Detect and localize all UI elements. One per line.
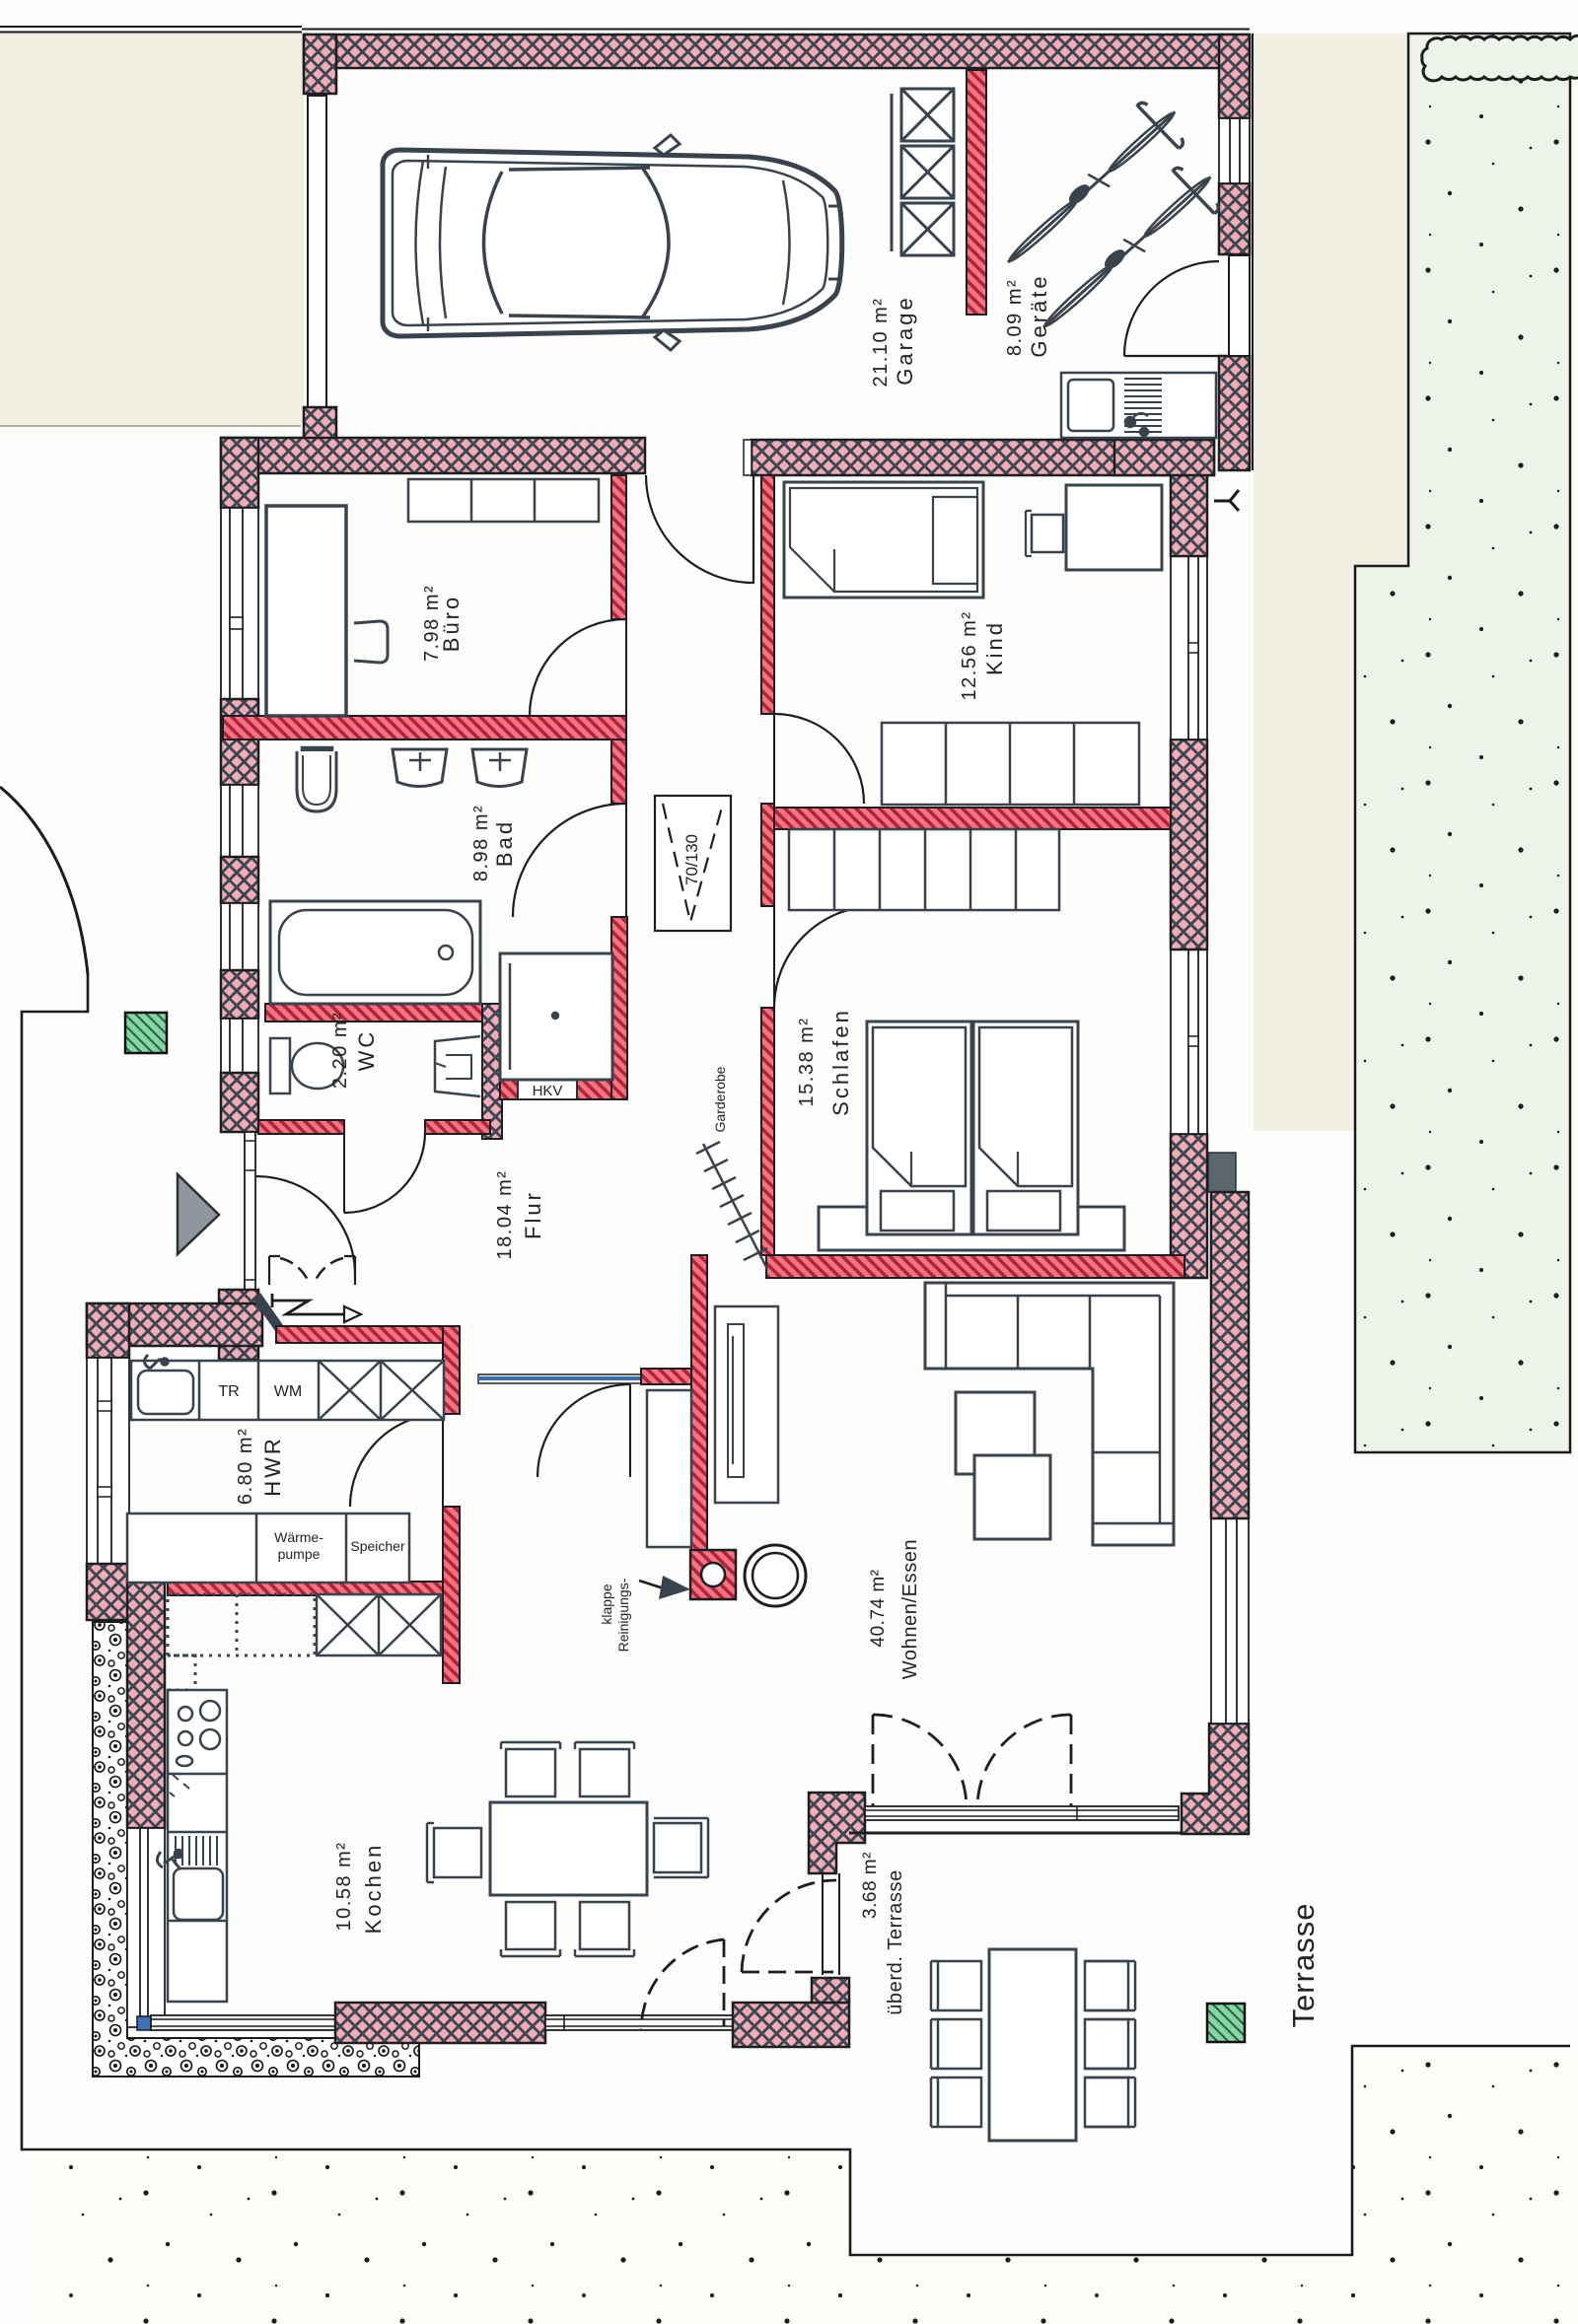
svg-text:Terrasse: Terrasse bbox=[1286, 1903, 1321, 2028]
svg-text:TR: TR bbox=[218, 1383, 239, 1400]
svg-text:3.68 m²: 3.68 m² bbox=[860, 1852, 881, 1919]
svg-text:Bad: Bad bbox=[492, 819, 517, 867]
svg-text:15.38 m²: 15.38 m² bbox=[796, 1018, 818, 1107]
svg-text:Garage: Garage bbox=[893, 295, 917, 385]
svg-text:Flur: Flur bbox=[521, 1190, 545, 1239]
svg-text:pumpe: pumpe bbox=[278, 1546, 321, 1562]
svg-text:klappe: klappe bbox=[599, 1584, 614, 1624]
svg-text:18.04 m²: 18.04 m² bbox=[494, 1170, 516, 1260]
svg-text:WC: WC bbox=[354, 1029, 379, 1072]
svg-text:Kind: Kind bbox=[982, 620, 1007, 675]
svg-text:40.74 m²: 40.74 m² bbox=[868, 1570, 889, 1648]
svg-text:6.80 m²: 6.80 m² bbox=[235, 1428, 256, 1505]
svg-text:Schlafen: Schlafen bbox=[828, 1008, 853, 1116]
svg-text:WM: WM bbox=[274, 1383, 302, 1400]
svg-text:Kochen: Kochen bbox=[361, 1843, 386, 1935]
svg-text:HKV: HKV bbox=[533, 1083, 563, 1099]
svg-text:2.20 m²: 2.20 m² bbox=[329, 1012, 351, 1089]
svg-text:überd. Terrasse: überd. Terrasse bbox=[885, 1869, 906, 2015]
svg-text:Garderobe: Garderobe bbox=[712, 1066, 728, 1132]
svg-text:12.56 m²: 12.56 m² bbox=[959, 611, 980, 701]
svg-text:Reinigungs-: Reinigungs- bbox=[615, 1578, 631, 1652]
svg-text:7.98 m²: 7.98 m² bbox=[421, 585, 443, 662]
svg-text:21.10 m²: 21.10 m² bbox=[870, 298, 892, 387]
svg-text:70/130: 70/130 bbox=[682, 834, 701, 885]
svg-text:Wärme-: Wärme- bbox=[274, 1529, 323, 1545]
svg-text:10.58 m²: 10.58 m² bbox=[333, 1842, 355, 1932]
svg-text:Speicher: Speicher bbox=[350, 1538, 405, 1554]
svg-text:Wohnen/Essen: Wohnen/Essen bbox=[899, 1539, 921, 1679]
svg-text:HWR: HWR bbox=[260, 1436, 285, 1497]
svg-text:8.98 m²: 8.98 m² bbox=[470, 805, 492, 881]
svg-text:Geräte: Geräte bbox=[1027, 273, 1051, 357]
svg-text:8.09 m²: 8.09 m² bbox=[1004, 279, 1026, 356]
